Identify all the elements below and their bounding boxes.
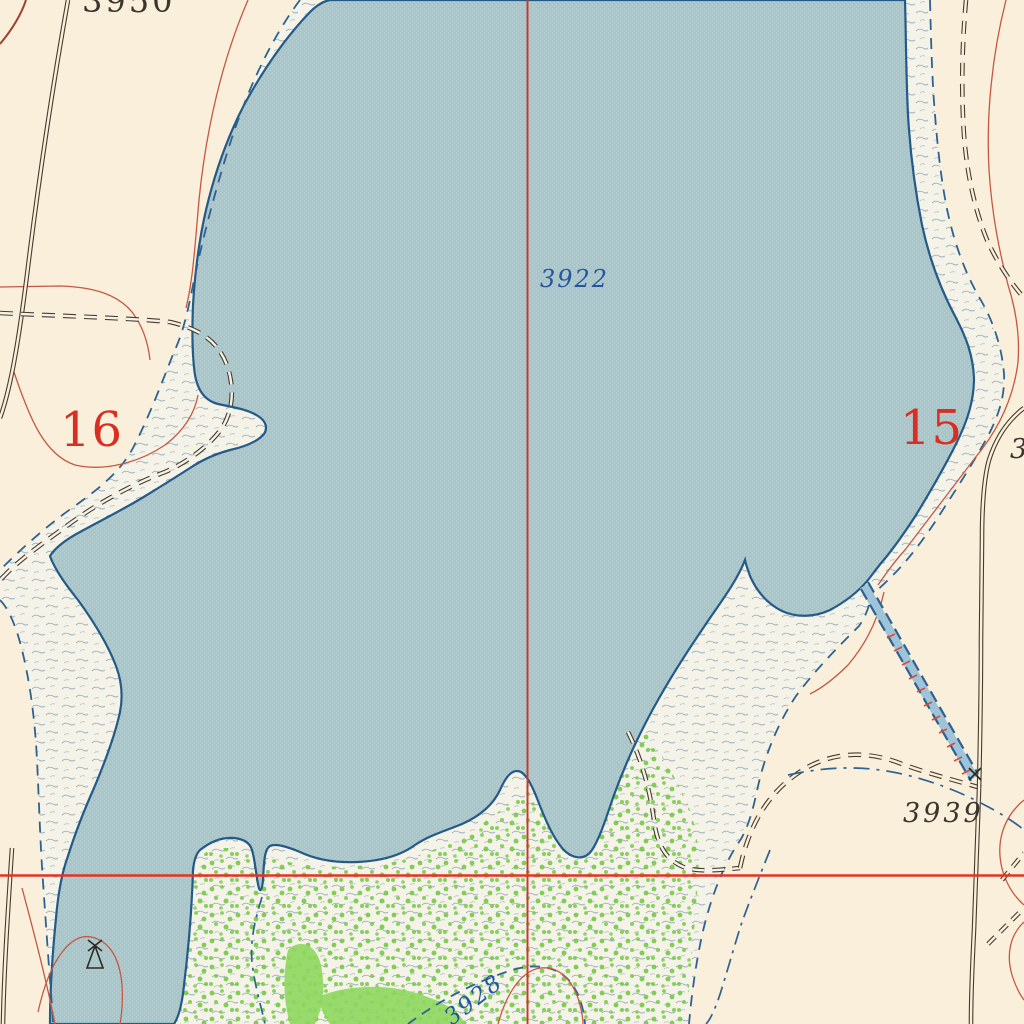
topo-map: 3950 3922 16 15 3939 3928 3 [0,0,1024,1024]
spot-elevation-3939: 3939 [903,798,984,829]
contour-label-3950: 3950 [82,0,175,20]
section-number-16: 16 [60,402,123,458]
partial-label-right: 3 [1010,434,1024,465]
topo-map-canvas: 3950 3922 16 15 3939 3928 3 [0,0,1024,1024]
water-elevation-label: 3922 [540,265,609,293]
section-number-15: 15 [900,400,963,456]
vegetation-patch [284,944,323,1024]
